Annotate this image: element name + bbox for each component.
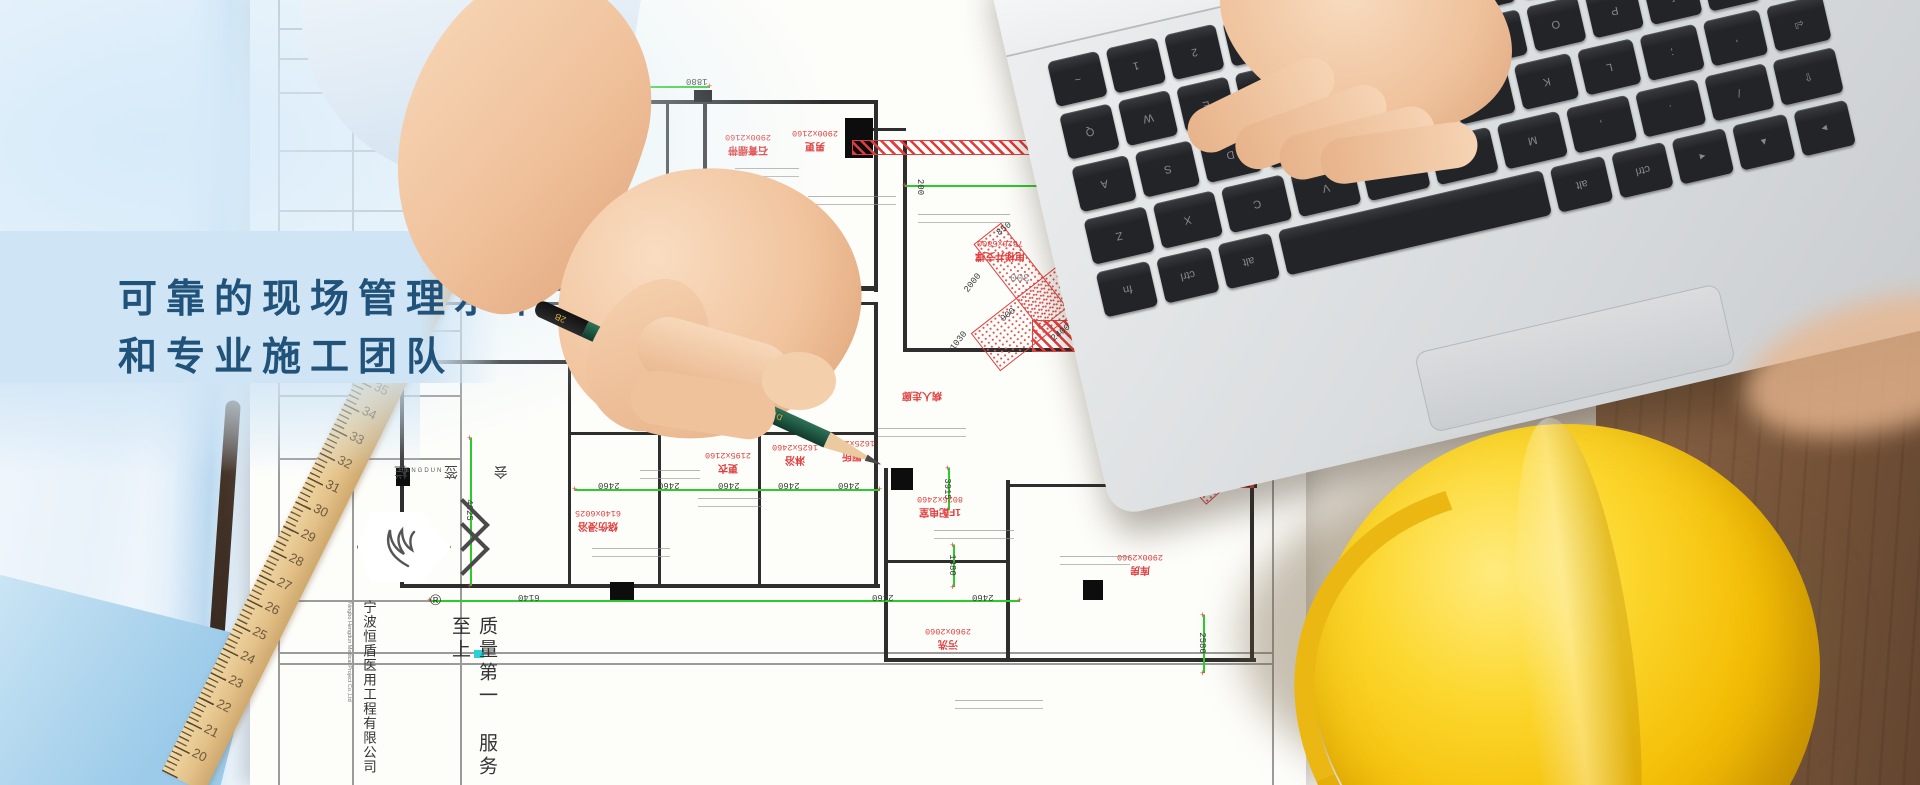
spec-note	[878, 428, 966, 437]
keyboard-key: ⏎	[1766, 0, 1832, 52]
dimension-tick: +	[1200, 670, 1207, 677]
wall	[1006, 480, 1010, 662]
room-label: 男更2900x2160	[775, 128, 855, 151]
company-name-cn: 宁波恒盾医用工程有限公司	[358, 600, 378, 774]
keyboard-key: L	[1577, 38, 1643, 96]
dimension-label: 2460	[778, 480, 800, 490]
fingertip	[762, 352, 836, 410]
keyboard-key: alt	[1217, 233, 1280, 290]
keyboard-key: .	[1635, 79, 1706, 138]
sheet-frame-line	[278, 652, 1274, 654]
keyboard-key: '	[1703, 9, 1769, 67]
dimension-label: 2580	[1197, 632, 1207, 654]
keyboard-key: A	[1071, 155, 1137, 213]
room-name: 电梯井支撑	[960, 249, 1040, 262]
dimension-tick: +	[467, 583, 474, 590]
ruler-number: 22	[214, 696, 234, 716]
keyboard-key: fn	[1096, 261, 1159, 318]
keyboard-key: alt	[1550, 156, 1613, 213]
keyboard-key: K	[1513, 53, 1579, 111]
keyboard-key: P	[1584, 0, 1645, 39]
room-size: 7820x5800	[960, 238, 1040, 249]
dimension-tick: +	[950, 584, 957, 591]
room-size: 6140x6025	[558, 508, 638, 519]
wall	[884, 658, 1256, 662]
dimension-tick: +	[572, 486, 579, 493]
hero-banner: ++++++++++++++++++++20602160188073804625…	[0, 0, 1920, 785]
room-label: 污洗2960x2060	[908, 626, 988, 649]
ruler-number: 31	[323, 476, 343, 496]
keyboard-key: ;	[1640, 24, 1706, 82]
keyboard-key: ctrl	[1611, 142, 1674, 199]
spec-note	[934, 530, 1014, 539]
dimension-label: 2000	[962, 271, 983, 294]
dimension-label: 200	[915, 179, 925, 195]
keyboard-key: /	[1704, 63, 1775, 122]
keyboard-key: ⇧	[1773, 47, 1844, 106]
spec-note	[808, 196, 896, 205]
dimension-label: 2460	[718, 480, 740, 490]
keyboard-key: M	[1497, 111, 1568, 170]
room-name: 1F配电室	[900, 505, 980, 518]
keyboard-key: ctrl	[1156, 247, 1219, 304]
room-name: 污洗	[908, 637, 988, 650]
structural-column	[694, 90, 712, 102]
ruler-number: 20	[190, 745, 210, 765]
dimension-tick: +	[467, 435, 474, 442]
keyboard-key: [	[1642, 0, 1703, 25]
registered-mark: ®	[430, 592, 441, 609]
spec-note	[955, 700, 1043, 709]
room-size: 2960x2060	[908, 626, 988, 637]
room-size: 2900x2160	[775, 128, 855, 139]
dimension-label: 1880	[686, 76, 708, 86]
dimension-tick: +	[950, 542, 957, 549]
ruler-number: 23	[226, 672, 246, 692]
structural-column	[891, 468, 913, 490]
claw-mark-icon	[374, 520, 430, 576]
room-label: 病人走廊	[882, 388, 962, 401]
room-name: 男更	[775, 139, 855, 152]
structural-column	[1083, 580, 1103, 600]
dimension-tick: +	[707, 83, 714, 90]
room-name: 病人走廊	[882, 388, 962, 401]
keyboard-key: S	[1134, 140, 1200, 198]
dimension-tick: +	[902, 182, 909, 189]
dimension-label: 6140	[518, 592, 540, 602]
keyboard-key: X	[1152, 190, 1223, 249]
keyboard-key: O	[1526, 0, 1587, 52]
dimension-label: 300	[1010, 270, 1030, 282]
keyboard-key: ▸	[1793, 100, 1856, 157]
room-name: 烧伤浸浴	[558, 519, 638, 532]
sheet-frame-line	[278, 663, 1274, 665]
spec-note	[640, 470, 700, 479]
keyboard-key: 2	[1164, 24, 1225, 80]
dimension-label: 1480	[947, 554, 957, 576]
dimension-tick: +	[1017, 597, 1024, 604]
spec-note	[918, 214, 1010, 223]
dimension-label: 2460	[598, 480, 620, 490]
ruler-number: 28	[287, 550, 307, 570]
ruler-number: 21	[202, 721, 222, 741]
headline-line2: 和专业施工团队	[118, 326, 454, 382]
dimension-tick: +	[877, 486, 884, 493]
dimension-label: 2460	[972, 592, 994, 602]
keyboard-key: ▴	[1732, 114, 1795, 171]
keyboard-key: C	[1221, 174, 1292, 233]
spec-note	[698, 498, 762, 507]
dimension-label: 2460	[838, 480, 860, 490]
keyboard-key: W	[1117, 90, 1178, 146]
room-label: 电梯井支撑7820x5800	[960, 238, 1040, 261]
keyboard-key: ~	[1047, 51, 1108, 107]
ruler-number: 29	[299, 525, 319, 545]
structural-column	[610, 582, 634, 600]
wall	[884, 468, 888, 662]
ruler-number: 24	[238, 647, 258, 667]
ruler-number: 25	[250, 623, 270, 643]
dimension-label: 2460	[658, 480, 680, 490]
quality-slogan: 质量第一 服务至上	[446, 616, 500, 785]
keyboard-key: 1	[1105, 37, 1166, 93]
room-size: 8025x2460	[900, 494, 980, 505]
room-label: 烧伤浸浴6140x6025	[558, 508, 638, 531]
headline-band-fade	[0, 380, 420, 475]
dimension-tick: +	[1200, 612, 1207, 619]
ruler-number: 27	[275, 574, 295, 594]
keyboard-key: ,	[1566, 95, 1637, 154]
room-label: 1F配电室8025x2460	[900, 494, 980, 517]
company-name-en: Ningbo Hengdun Medical Project Co.,Ltd	[346, 602, 352, 702]
dimension-label: 2460	[872, 592, 894, 602]
spec-note	[592, 548, 670, 557]
ruler-number: 30	[311, 501, 331, 521]
keyboard-key: Q	[1059, 103, 1120, 159]
keyboard-key: ◂	[1671, 128, 1734, 185]
ruler-number: 26	[262, 598, 282, 618]
wall	[903, 140, 907, 352]
keyboard-key: Z	[1083, 206, 1154, 265]
spec-note	[1060, 556, 1130, 565]
dimension-tick: +	[945, 465, 952, 472]
